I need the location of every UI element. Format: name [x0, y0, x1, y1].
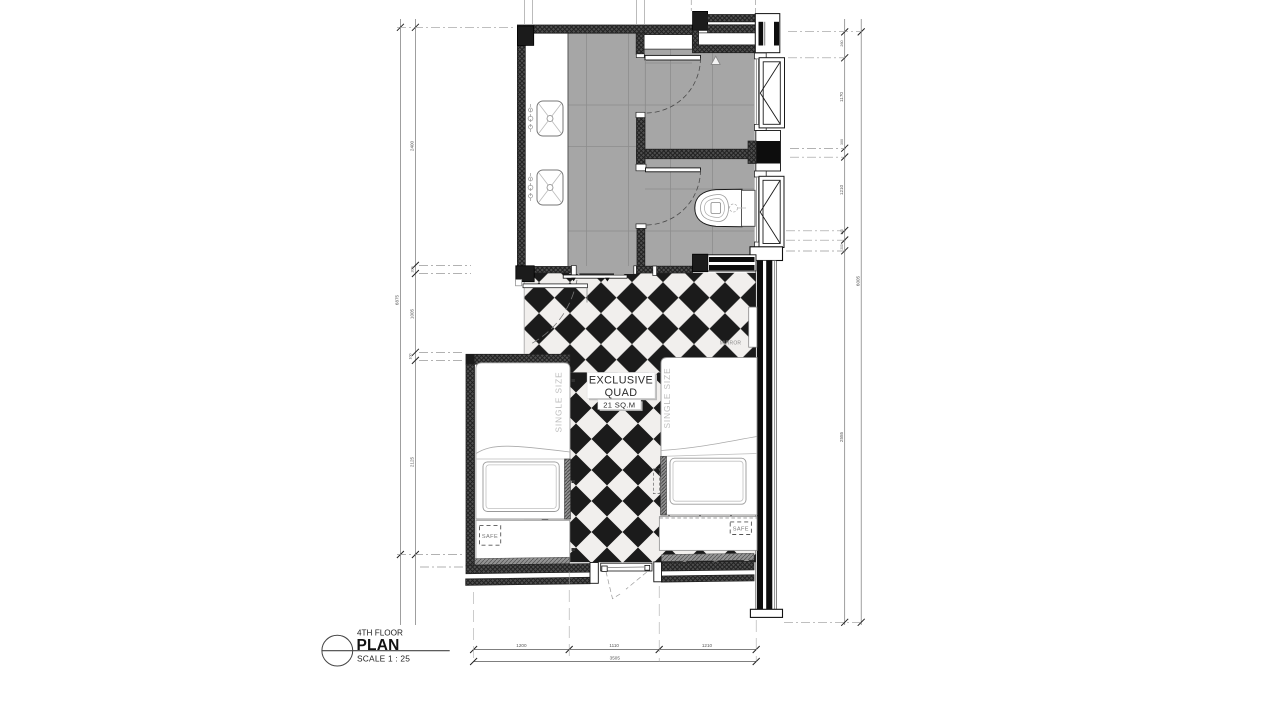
svg-text:1170: 1170: [839, 92, 844, 102]
svg-text:1210: 1210: [839, 184, 844, 195]
svg-text:SAFE: SAFE: [482, 534, 498, 540]
svg-text:SAFE: SAFE: [733, 527, 749, 533]
svg-text:PLAN: PLAN: [357, 637, 400, 654]
svg-text:300: 300: [840, 139, 844, 145]
svg-text:200: 200: [411, 267, 415, 273]
svg-text:1200: 1200: [516, 643, 527, 648]
svg-text:2555: 2555: [839, 431, 844, 442]
svg-text:1005: 1005: [410, 308, 415, 319]
svg-text:21 SQ.M: 21 SQ.M: [603, 401, 635, 410]
svg-text:MIRROR: MIRROR: [720, 340, 742, 346]
svg-text:6875: 6875: [395, 294, 400, 305]
svg-text:SINGLE SIZE: SINGLE SIZE: [554, 371, 564, 432]
svg-text:EXCLUSIVE: EXCLUSIVE: [589, 375, 653, 387]
svg-text:1210: 1210: [702, 643, 713, 648]
svg-text:SCALE 1 : 25: SCALE 1 : 25: [357, 654, 410, 664]
svg-text:2400: 2400: [410, 140, 415, 151]
svg-text:6005: 6005: [856, 275, 861, 286]
svg-text:3505: 3505: [610, 655, 621, 660]
svg-text:140: 140: [840, 229, 844, 235]
svg-text:SINGLE SIZE: SINGLE SIZE: [662, 367, 672, 428]
svg-text:1110: 1110: [609, 643, 619, 648]
svg-text:100: 100: [409, 354, 413, 360]
svg-text:260: 260: [840, 40, 844, 46]
svg-text:QUAD: QUAD: [605, 387, 638, 399]
svg-text:2125: 2125: [410, 456, 415, 467]
svg-text:200: 200: [840, 244, 844, 250]
